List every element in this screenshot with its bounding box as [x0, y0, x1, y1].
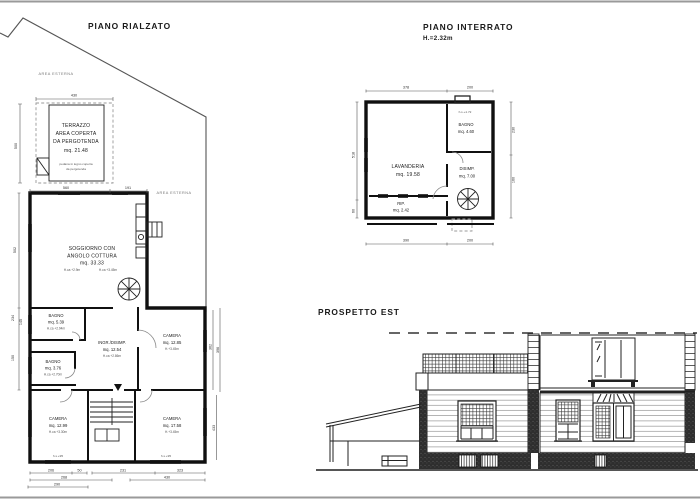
camera2-height: H.ca +3.30m: [49, 430, 68, 434]
bagno1-label: BAGNO: [48, 313, 64, 318]
camera3-label: CAMERA: [163, 416, 181, 421]
plan-interrato-height: H.=2.32m: [423, 35, 453, 42]
dim-390: 390: [403, 239, 409, 243]
middle-pilaster: [528, 390, 539, 453]
bagno2-height: H.ca +2.70m: [44, 373, 63, 377]
prospetto-est: PROSPETTO EST: [316, 307, 698, 470]
dim-323: 323: [177, 469, 183, 473]
dim-50: 50: [77, 469, 81, 473]
basement-bagno-label: BAGNO: [458, 122, 474, 127]
dim-145: 145: [19, 319, 23, 325]
window-sill-label-1: h.s.+95: [53, 454, 64, 458]
right-downspout: [685, 334, 695, 390]
pergola-bench-lines: [382, 456, 407, 466]
rip-label: RIP.: [397, 201, 405, 206]
spiral-stair-steps: [118, 278, 140, 300]
right-lower-window-grid: [558, 402, 578, 422]
dim-433: 433: [212, 425, 216, 431]
ingresso-area-value: mq. 12.54: [103, 347, 122, 352]
dim-160: 160: [512, 177, 516, 183]
dim-231: 231: [120, 469, 126, 473]
dim-430-bottom: 430: [164, 476, 170, 480]
plan-rialzato-title: PIANO RIALZATO: [88, 21, 171, 31]
dim-500-terrace: 500: [14, 143, 18, 149]
camera1-label: CAMERA: [163, 333, 181, 338]
window-sill-label-2: h.s.+95: [161, 454, 172, 458]
camera1-area-value: mq. 12.85: [163, 340, 182, 345]
basement-footprint: [366, 102, 493, 218]
lavanderia-label: LAVANDERIA: [392, 164, 425, 170]
vent-grille-3: [595, 455, 606, 467]
bagno1-area-value: mq. 5.39: [48, 320, 65, 325]
dim-191: 191: [125, 186, 131, 190]
bagno2-area-value: mq. 3.76: [45, 366, 62, 371]
right-corner-pilaster: [685, 392, 695, 443]
camera3-area-value: mq. 17.58: [163, 423, 182, 428]
disimp-area-value: mq. 7.00: [459, 174, 476, 179]
dim-362: 362: [209, 344, 213, 350]
dim-234: 234: [11, 315, 15, 321]
terrazzo-label-2: AREA COPERTA: [56, 131, 97, 137]
dim-518: 518: [352, 152, 356, 158]
terrazzo-note-2: da pergotenda: [66, 167, 86, 171]
dim-268: 268: [61, 476, 67, 480]
dim-lines-top: [18, 97, 147, 193]
camera2-area-value: mq. 12.99: [49, 423, 68, 428]
prospetto-title: PROSPETTO EST: [318, 307, 400, 317]
basement-window-label: h.s.+1.72: [459, 110, 472, 114]
external-stair: [147, 222, 162, 237]
bagno2-label: BAGNO: [45, 359, 61, 364]
dim-150: 150: [11, 355, 15, 361]
lavanderia-area-value: mq. 19.58: [396, 172, 420, 178]
roof-fascia: [416, 373, 531, 390]
soggiorno-label-2: ANGOLO COTTURA: [67, 254, 117, 260]
ingresso-label: INGR./DISIMP.: [98, 340, 126, 345]
terrace-railing-lattice: [423, 354, 530, 373]
terrazzo-label-1: TERRAZZO: [62, 123, 91, 129]
vent-grille-2: [481, 455, 498, 467]
plan-rialzato: PIANO RIALZATO AREA ESTERNA AREA ESTERNA…: [0, 18, 220, 489]
soggiorno-area-value: mq. 33.33: [80, 261, 104, 267]
area-esterna-label-2: AREA ESTERNA: [156, 191, 191, 195]
dim-396: 396: [216, 347, 220, 353]
soggiorno-height-1: H.ca +2.9m: [64, 268, 81, 272]
door-left-leaf-grid: [596, 406, 610, 438]
dim-60: 60: [352, 209, 356, 213]
area-esterna-label-1: AREA ESTERNA: [38, 72, 73, 76]
drawing-sheet: PIANO RIALZATO AREA ESTERNA AREA ESTERNA…: [0, 0, 700, 500]
dim-290: 290: [54, 483, 60, 487]
basement-spiral-stair-steps: [458, 189, 479, 210]
ingresso-height: H.ca +2.86m: [103, 354, 122, 358]
bagno1-height: H.ca +2.94m: [47, 327, 66, 331]
plan-interrato: PIANO INTERRATO H.=2.32m h.s.+1.72 LAVAN…: [352, 22, 516, 246]
dim-200-bottom: 200: [467, 239, 473, 243]
upper-window-panes: [595, 340, 621, 378]
left-window-grid: [461, 404, 493, 426]
dim-502: 502: [13, 247, 17, 253]
plan-interrato-title: PIANO INTERRATO: [423, 22, 513, 32]
sill-bracket-right: [631, 382, 635, 387]
dim-560: 560: [63, 186, 69, 190]
terrazzo-label-3: DA PERGOTENDA: [53, 139, 99, 145]
rip-area-value: mq. 2.42: [393, 208, 410, 213]
sill-bracket-left: [591, 382, 595, 387]
camera2-label: CAMERA: [49, 416, 67, 421]
left-corner-pilaster: [419, 390, 427, 453]
dim-378: 378: [403, 86, 409, 90]
soggiorno-label-1: SOGGIORNO CON: [69, 246, 116, 252]
disimp-label: DISIMP.: [459, 166, 474, 171]
dim-206: 206: [48, 469, 54, 473]
camera1-height: H.+3.45m: [165, 347, 179, 351]
dim-230: 230: [512, 127, 516, 133]
dim-200-top: 200: [467, 86, 473, 90]
right-plinth: [538, 453, 695, 470]
terrazzo-area-value: mq. 21.48: [64, 148, 88, 154]
terrazzo-note-1: pedana in legno coperta: [59, 162, 92, 166]
middle-downspout: [528, 334, 539, 390]
terrace-step-diagonal: [37, 158, 49, 175]
basement-bagno-area-value: mq. 4.60: [458, 129, 475, 134]
architectural-drawing: PIANO RIALZATO AREA ESTERNA AREA ESTERNA…: [0, 0, 700, 500]
external-stair-treads: [152, 222, 157, 237]
dim-430-top: 430: [71, 94, 77, 98]
soggiorno-height-2: H.ca +3.45m: [99, 268, 118, 272]
vent-grille-1: [459, 455, 476, 467]
camera3-height: H.+3.45m: [165, 430, 179, 434]
